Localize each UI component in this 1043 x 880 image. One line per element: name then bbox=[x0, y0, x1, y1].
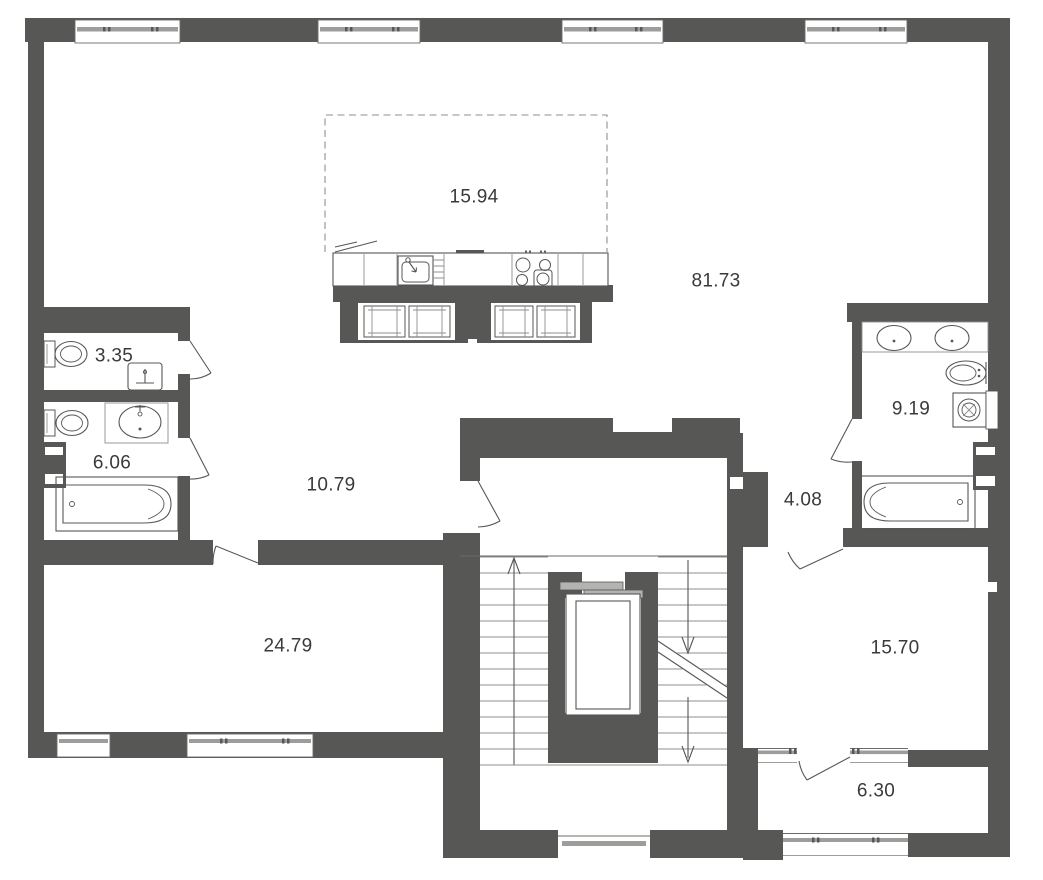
room-area-label-room-bl: 24.79 bbox=[263, 637, 312, 656]
sink-icon bbox=[128, 363, 162, 390]
door-swing-icon bbox=[190, 438, 209, 479]
door-swing-icon bbox=[799, 757, 850, 780]
room-area-label-living: 81.73 bbox=[691, 272, 740, 291]
window-icon bbox=[558, 836, 650, 846]
bathtub-icon bbox=[56, 477, 178, 531]
room-area-label-corridor: 4.08 bbox=[784, 491, 822, 510]
elevator-car bbox=[566, 594, 640, 715]
room-area-label-bath-small: 6.06 bbox=[93, 454, 131, 473]
vent-duct-icon bbox=[358, 303, 455, 340]
stair-flight-right bbox=[658, 557, 727, 765]
washing-machine-icon bbox=[953, 391, 998, 429]
window-icon bbox=[562, 20, 663, 43]
door-swing-icon bbox=[213, 546, 258, 564]
window-icon bbox=[783, 834, 908, 856]
door-swing-icon bbox=[190, 341, 211, 379]
floor-plan-drawing bbox=[0, 0, 1043, 880]
room-area-label-bath-large: 9.19 bbox=[892, 400, 930, 419]
door-swing-icon bbox=[831, 419, 852, 462]
window-icon bbox=[57, 734, 110, 757]
door-swing-icon bbox=[478, 481, 500, 527]
room-area-label-room-br: 15.70 bbox=[870, 639, 919, 658]
radiator-icon bbox=[973, 442, 998, 490]
toilet-icon bbox=[44, 410, 88, 436]
window-icon bbox=[75, 20, 180, 43]
room-area-label-balcony: 6.30 bbox=[857, 782, 895, 801]
toilet-icon bbox=[44, 341, 87, 367]
stair-flight-left bbox=[480, 557, 548, 765]
door-swing-icon bbox=[788, 549, 843, 569]
vent-duct-icon bbox=[491, 303, 580, 340]
room-area-label-wc: 3.35 bbox=[95, 347, 133, 366]
floor-plan-canvas: 15.94 81.73 3.35 6.06 9.19 10.79 4.08 24… bbox=[0, 0, 1043, 880]
kitchen-zone-outline bbox=[325, 115, 607, 252]
window-icon bbox=[187, 734, 313, 757]
bathroom-large-fixtures bbox=[860, 316, 998, 529]
walls bbox=[25, 18, 1010, 860]
window-icon bbox=[805, 20, 907, 43]
kitchen-counter bbox=[333, 253, 608, 286]
elevator-icon bbox=[548, 572, 658, 763]
room-area-label-kitchen: 15.94 bbox=[449, 188, 498, 207]
window-icon bbox=[318, 20, 420, 43]
radiator-icon bbox=[42, 442, 66, 488]
toilet-icon bbox=[946, 361, 986, 385]
room-area-label-hallway: 10.79 bbox=[306, 476, 355, 495]
sink-icon bbox=[105, 403, 168, 443]
window-icon bbox=[758, 748, 908, 763]
elevator-door bbox=[560, 582, 623, 590]
bathtub-icon bbox=[860, 476, 975, 529]
